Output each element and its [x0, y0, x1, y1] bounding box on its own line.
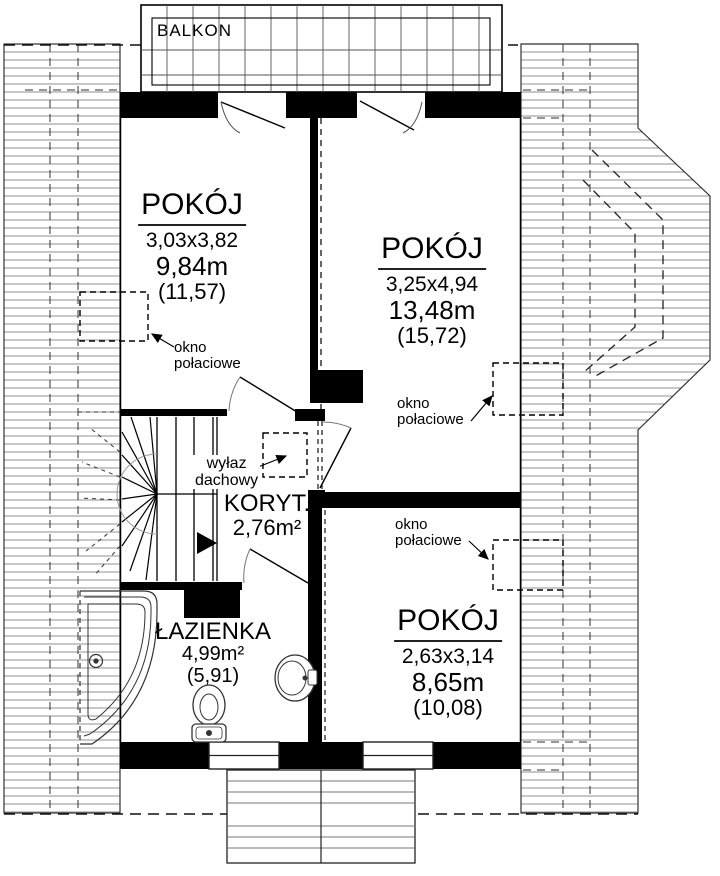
roof-window-label-bottom-line2: połaciowe: [395, 533, 462, 549]
roof-area-right-with-bay: [521, 44, 710, 813]
roof-window-label-bottom: okno połaciowe: [395, 517, 462, 549]
roof-hatch-rect: [263, 433, 307, 477]
chimney-bottom: [184, 590, 240, 618]
balcony-label: BALKON: [157, 21, 232, 41]
roof-window-label-right: okno połaciowe: [397, 396, 464, 428]
roof-window-label-left-line1: okno: [174, 340, 241, 356]
roof-hatch-label-line1: wyłaz: [195, 455, 258, 472]
room-right-label: POKÓJ 3,25x4,94 13,48m (15,72): [378, 234, 486, 348]
corridor-label: KORYT. 2,76m²: [224, 492, 310, 540]
room-left-label: POKÓJ 3,03x3,82 9,84m (11,57): [138, 190, 246, 304]
room-right-area: 13,48m: [378, 297, 486, 324]
room-left-total: (11,57): [138, 280, 246, 304]
corridor-area: 2,76m²: [224, 516, 310, 540]
bathroom-area: 4,99m²: [152, 644, 274, 665]
corridor-name: KORYT.: [224, 492, 310, 516]
stairs-direction-arrow: [197, 532, 217, 554]
room-bottom-area: 8,65m: [394, 669, 502, 696]
balcony-door-left: [221, 102, 285, 133]
roof-window-label-bottom-line1: okno: [395, 517, 462, 533]
bathroom-name: ŁAZIENKA: [152, 620, 274, 644]
room-right-dims: 3,25x4,94: [378, 274, 486, 297]
room-left-name: POKÓJ: [138, 190, 246, 226]
roof-hatch-label-line2: dachowy: [195, 472, 258, 489]
roof-window-label-left: okno połaciowe: [174, 340, 241, 372]
door-room-left: [229, 377, 297, 412]
bathroom-label: ŁAZIENKA 4,99m² (5,91): [152, 620, 274, 687]
room-right-total: (15,72): [378, 324, 486, 348]
roof-area-left: [4, 44, 120, 813]
room-left-dims: 3,03x3,82: [138, 230, 246, 253]
bathroom-total: (5,91): [152, 665, 274, 687]
floor-plan-drawing: [0, 0, 720, 876]
room-bottom-label: POKÓJ 2,63x3,14 8,65m (10,08): [394, 606, 502, 720]
balcony-structure: [141, 5, 502, 92]
roof-window-label-right-line2: połaciowe: [397, 412, 464, 428]
room-right-name: POKÓJ: [378, 234, 486, 270]
roof-window-label-right-line1: okno: [397, 396, 464, 412]
terrace-steps: [227, 770, 415, 863]
roof-window-label-left-line2: połaciowe: [174, 356, 241, 372]
door-bathroom: [244, 549, 308, 583]
room-bottom-dims: 2,63x3,14: [394, 646, 502, 669]
toilet-icon: [192, 685, 226, 742]
balcony-door-right: [360, 101, 422, 133]
door-room-bottom: [320, 422, 351, 488]
floor-plan: BALKON POKÓJ 3,03x3,82 9,84m (11,57) POK…: [0, 0, 720, 876]
room-left-area: 9,84m: [138, 253, 246, 280]
room-bottom-name: POKÓJ: [394, 606, 502, 642]
room-bottom-total: (10,08): [394, 696, 502, 720]
roof-hatch-label: wyłaz dachowy: [193, 455, 260, 489]
